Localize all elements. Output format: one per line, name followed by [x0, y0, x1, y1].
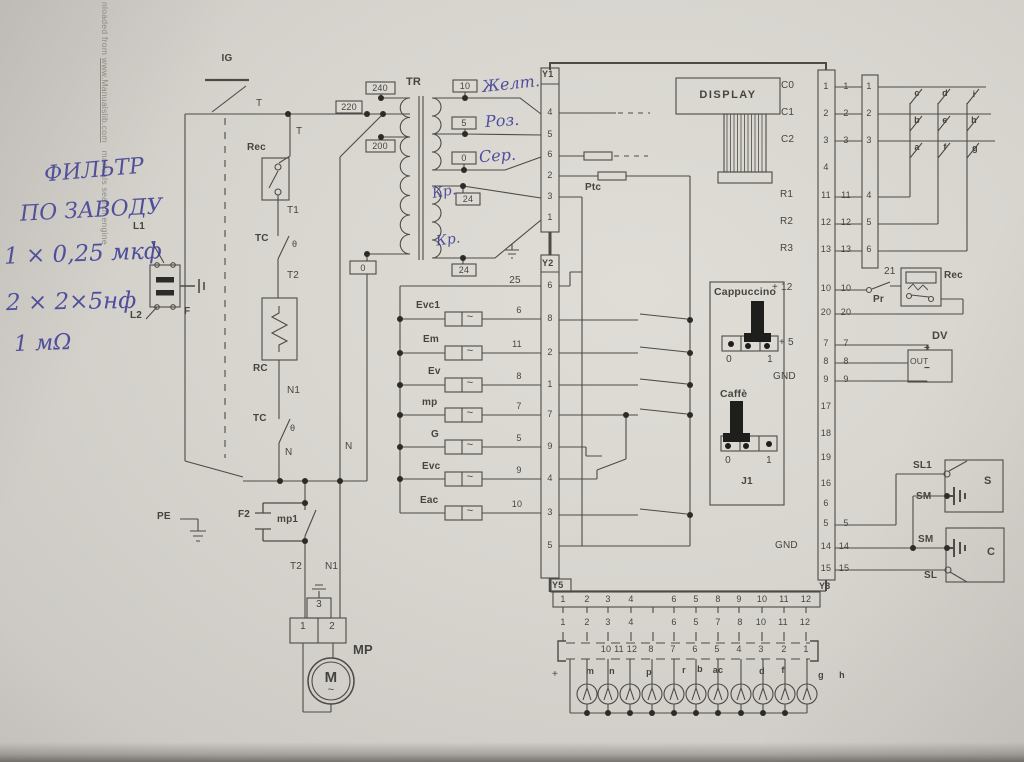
wire-l2: L2 — [130, 311, 142, 321]
y5-row3: 7 — [670, 645, 675, 654]
signal-c0: C0 — [781, 81, 794, 91]
keypad-pin: 3 — [866, 136, 871, 145]
j1-cappuccino-0: 0 — [726, 355, 732, 365]
lamp-harness — [558, 641, 818, 713]
y3-pin: 9 — [823, 375, 828, 384]
y3-wire: 2 — [843, 109, 848, 118]
key-label: a — [914, 143, 919, 152]
sec-tap-24a: 24 — [463, 195, 473, 204]
y3-pin: 15 — [821, 564, 831, 573]
pr-label: Pr — [873, 295, 884, 305]
y2-pin: 2 — [547, 348, 552, 357]
signal-r1: R1 — [780, 190, 793, 200]
wire-n1: N1 — [287, 386, 300, 396]
y3-pin: 13 — [821, 245, 831, 254]
y5-row3: 5 — [714, 645, 719, 654]
y3-wire: 11 — [841, 191, 851, 200]
y3-pin: 16 — [821, 479, 831, 488]
y5-row1: 5 — [693, 595, 698, 604]
j1-caffe-label: Caffè — [720, 389, 747, 400]
ac-symbol: ~ — [467, 408, 474, 419]
sm-c-label: SM — [918, 535, 933, 545]
y1-pin: 2 — [547, 171, 552, 180]
y3-pin: 10 — [821, 284, 831, 293]
motor-ac-symbol: ~ — [328, 685, 335, 696]
y5-row1: 10 — [757, 595, 767, 604]
wire-25: 25 — [509, 276, 521, 286]
dv-minus: − — [924, 364, 930, 374]
keypad-pin: 6 — [866, 245, 871, 254]
keypad-pin: 5 — [866, 218, 871, 227]
y1-pin: 4 — [547, 108, 552, 117]
y3-wire: 20 — [841, 308, 851, 317]
y3-pin: 4 — [823, 163, 828, 172]
y3-label: Y3 — [819, 582, 830, 591]
wire-n-rail: N — [345, 442, 352, 452]
key-label: f — [943, 143, 946, 152]
sensor-c-label: C — [987, 547, 995, 558]
wire-n1-motor: N1 — [325, 562, 338, 572]
y5-row1: 2 — [584, 595, 589, 604]
y3-wire: 3 — [843, 136, 848, 145]
y5-row2: 4 — [628, 618, 633, 627]
y3-wire: 10 — [841, 284, 851, 293]
y3-pin: 7 — [823, 339, 828, 348]
sl-label: SL — [924, 571, 937, 581]
signal-r3: R3 — [780, 244, 793, 254]
signal-gnd-1: GND — [773, 372, 796, 382]
theta-upper: θ — [292, 240, 297, 249]
tap-240: 240 — [372, 84, 388, 93]
y2-pin: 5 — [547, 541, 552, 550]
signal-r2: R2 — [780, 217, 793, 227]
ac-symbol: ~ — [467, 440, 474, 451]
y2-pin: 1 — [547, 380, 552, 389]
y5-row2: 12 — [800, 618, 810, 627]
key-label: g — [972, 144, 978, 153]
lamp-label: d — [759, 667, 765, 676]
keypad-pin: 4 — [866, 191, 871, 200]
ac-symbol: ~ — [467, 312, 474, 323]
y5-row1: 8 — [715, 595, 720, 604]
theta-lower: θ — [290, 424, 295, 433]
ac-symbol: ~ — [467, 472, 474, 483]
y3-pin: 17 — [821, 402, 831, 411]
wire-t2: T2 — [287, 271, 299, 281]
y5-row3: 1 — [803, 645, 808, 654]
y3-pin: 8 — [823, 357, 828, 366]
lamp-label: ac — [713, 666, 723, 675]
lamp-label: m — [586, 667, 594, 676]
key-label: b — [914, 116, 920, 125]
y2-label: Y2 — [542, 259, 553, 268]
y3-pin: 2 — [823, 109, 828, 118]
y3-wire: 15 — [839, 564, 849, 573]
load-wire-number: 9 — [516, 466, 521, 475]
signal-c2: C2 — [781, 135, 794, 145]
signal-c1: C1 — [781, 108, 794, 118]
motor-m-symbol: M — [325, 670, 338, 685]
y5-row2: 6 — [671, 618, 676, 627]
j1-cappuccino-1: 1 — [767, 355, 773, 365]
tap-0: 0 — [360, 264, 365, 273]
y5-row2: 1 — [560, 618, 565, 627]
keypad-pin: 2 — [866, 109, 871, 118]
y3-pin: 18 — [821, 429, 831, 438]
lamp-label: r — [682, 666, 686, 675]
motor-mp-label: MP — [353, 643, 373, 656]
y5-row2: 3 — [605, 618, 610, 627]
y5-row2: 5 — [693, 618, 698, 627]
y5-row2: 11 — [778, 618, 788, 627]
sec-tap-5: 5 — [461, 119, 466, 128]
ac-symbol: ~ — [467, 506, 474, 517]
y3-pin: 11 — [821, 191, 831, 200]
display-label: DISPLAY — [699, 90, 756, 101]
y3-wire: 7 — [843, 339, 848, 348]
y5-row2: 10 — [756, 618, 766, 627]
y5-row3: 11 — [614, 645, 624, 654]
mp1-label: mp1 — [277, 515, 298, 525]
y3-pin: 5 — [823, 519, 828, 528]
y1-label: Y1 — [542, 70, 553, 79]
y2-pin: 8 — [547, 314, 552, 323]
y5-row2: 7 — [715, 618, 720, 627]
rec-right-label: Rec — [944, 271, 963, 281]
sec-tap-24b: 24 — [459, 266, 469, 275]
tap-220: 220 — [341, 103, 357, 112]
pe-label: PE — [157, 512, 171, 522]
signal-plus5: + 5 — [779, 338, 794, 348]
signal-gnd-2: GND — [775, 541, 798, 551]
y3-pin: 3 — [823, 136, 828, 145]
y5-row3: 3 — [758, 645, 763, 654]
lamp-label: n — [609, 667, 615, 676]
dv-circuit — [835, 345, 952, 382]
ground-icon — [505, 244, 519, 258]
key-label: h — [971, 116, 977, 125]
plug-pin-1: 1 — [300, 622, 306, 632]
y5-row3: 8 — [648, 645, 653, 654]
y1-pin: 3 — [547, 192, 552, 201]
load-name: Evc — [422, 462, 440, 472]
dv-plus: + — [924, 344, 930, 354]
y1-pin: 1 — [547, 213, 552, 222]
plug-pin-3: 3 — [316, 600, 322, 610]
dv-label: DV — [932, 331, 948, 342]
y5-row3: 2 — [781, 645, 786, 654]
wire-t-top: T — [256, 99, 262, 109]
y3-pin: 19 — [821, 453, 831, 462]
y3-wire: 5 — [843, 519, 848, 528]
handwritten-wire-red-1: Кр. — [431, 183, 457, 201]
handwritten-wire-pink: Роз. — [484, 112, 519, 130]
load-name: Eac — [420, 496, 438, 506]
keypad-matrix — [835, 75, 995, 268]
j1-caffe-1: 1 — [766, 456, 772, 466]
y2-pin: 7 — [547, 410, 552, 419]
y5-row1: 12 — [801, 595, 811, 604]
y5-row1: 11 — [779, 595, 789, 604]
wire-n: N — [285, 448, 292, 458]
load-name: G — [431, 430, 439, 440]
key-label: d — [942, 89, 948, 98]
handwritten-note-line3: 1 × 0,25 мкф — [4, 240, 163, 268]
sensor-circuits — [835, 460, 1004, 582]
wire-t1: T1 — [287, 206, 299, 216]
f2-label: F2 — [238, 510, 250, 520]
key-label: i — [973, 90, 976, 99]
load-name: Ev — [428, 367, 441, 377]
y2-pin: 9 — [547, 442, 552, 451]
scanned-schematic-page: nloaded from www.Manualslib.com manuals … — [0, 0, 1024, 762]
ig-switch-label: IG — [222, 54, 233, 64]
handwritten-note-line5: 1 мΩ — [14, 332, 72, 356]
rc-label: RC — [253, 364, 268, 374]
rec-left-label: Rec — [247, 143, 266, 153]
y1-pin: 6 — [547, 150, 552, 159]
y5-row1: 4 — [628, 595, 633, 604]
handwritten-wire-red-2: Кр. — [435, 231, 461, 248]
y3-pin: 6 — [823, 499, 828, 508]
lamp-plus: + — [552, 670, 558, 680]
y3-pin: 14 — [821, 542, 831, 551]
transformer-label: TR — [406, 77, 421, 88]
sensor-s-label: S — [984, 476, 992, 487]
lamp-label: g — [818, 671, 824, 680]
y5-row2: 8 — [737, 618, 742, 627]
y3-wire: 12 — [841, 218, 851, 227]
handwritten-wire-grey: Сер. — [478, 147, 516, 166]
y5-row3: 10 — [601, 645, 611, 654]
junction-dots — [277, 95, 950, 716]
tap-200: 200 — [372, 142, 388, 151]
lamp-label: h — [839, 671, 845, 680]
handwritten-note-line4: 2 × 2×5нф — [6, 290, 137, 315]
y5-row1: 9 — [736, 595, 741, 604]
load-name: Em — [423, 335, 439, 345]
y2-pin: 4 — [547, 474, 552, 483]
j1-cappuccino-label: Cappuccino — [714, 287, 776, 298]
lamp-label: b — [697, 665, 703, 674]
wire-l1: L1 — [133, 222, 145, 232]
wire-t-mid: T — [296, 127, 302, 137]
sec-tap-0: 0 — [461, 154, 466, 163]
y3-wire: 1 — [843, 82, 848, 91]
load-wire-number: 10 — [512, 500, 522, 509]
ptc-label: Ptc — [585, 183, 601, 193]
load-name: mp — [422, 398, 437, 408]
load-wire-number: 5 — [516, 434, 521, 443]
y5-row3: 6 — [692, 645, 697, 654]
tc-lower-label: TC — [253, 414, 267, 424]
sl1-label: SL1 — [913, 461, 932, 471]
sm-s-label: SM — [916, 492, 931, 502]
y3-pin: 1 — [823, 82, 828, 91]
lamp-label: f — [781, 666, 784, 675]
j1-caffe-0: 0 — [725, 456, 731, 466]
wire-21: 21 — [884, 267, 896, 277]
sec-tap-10: 10 — [460, 82, 470, 91]
y1-pin: 5 — [547, 130, 552, 139]
pe-ground-icon — [180, 519, 206, 541]
load-wire-number: 6 — [516, 306, 521, 315]
load-name: Evc1 — [416, 301, 440, 311]
load-wire-number: 8 — [516, 372, 521, 381]
y5-row3: 12 — [627, 645, 637, 654]
ac-symbol: ~ — [467, 346, 474, 357]
key-label: e — [942, 116, 947, 125]
load-wire-number: 11 — [512, 340, 522, 349]
y3-pin: 20 — [821, 308, 831, 317]
y5-label: Y5 — [552, 581, 563, 590]
ac-symbol: ~ — [467, 378, 474, 389]
y5-row1: 3 — [605, 595, 610, 604]
key-label: c — [914, 89, 919, 98]
y5-row1: 1 — [560, 595, 565, 604]
y5-row3: 4 — [736, 645, 741, 654]
filter-f-label: F — [184, 307, 190, 317]
y2-pin: 6 — [547, 281, 552, 290]
tc-upper-label: TC — [255, 234, 269, 244]
wire-t2-motor: T2 — [290, 562, 302, 572]
load-wire-number: 7 — [516, 402, 521, 411]
y5-row1: 6 — [671, 595, 676, 604]
plug-pin-2: 2 — [329, 622, 335, 632]
y3-wire: 14 — [839, 542, 849, 551]
y3-wire: 9 — [843, 375, 848, 384]
lamp-label: p — [646, 668, 652, 677]
y5-row2: 2 — [584, 618, 589, 627]
y3-pin: 12 — [821, 218, 831, 227]
j1-label: J1 — [741, 477, 753, 487]
y3-wire: 13 — [841, 245, 851, 254]
y2-pin: 3 — [547, 508, 552, 517]
y3-wire: 8 — [843, 357, 848, 366]
keypad-pin: 1 — [866, 82, 871, 91]
